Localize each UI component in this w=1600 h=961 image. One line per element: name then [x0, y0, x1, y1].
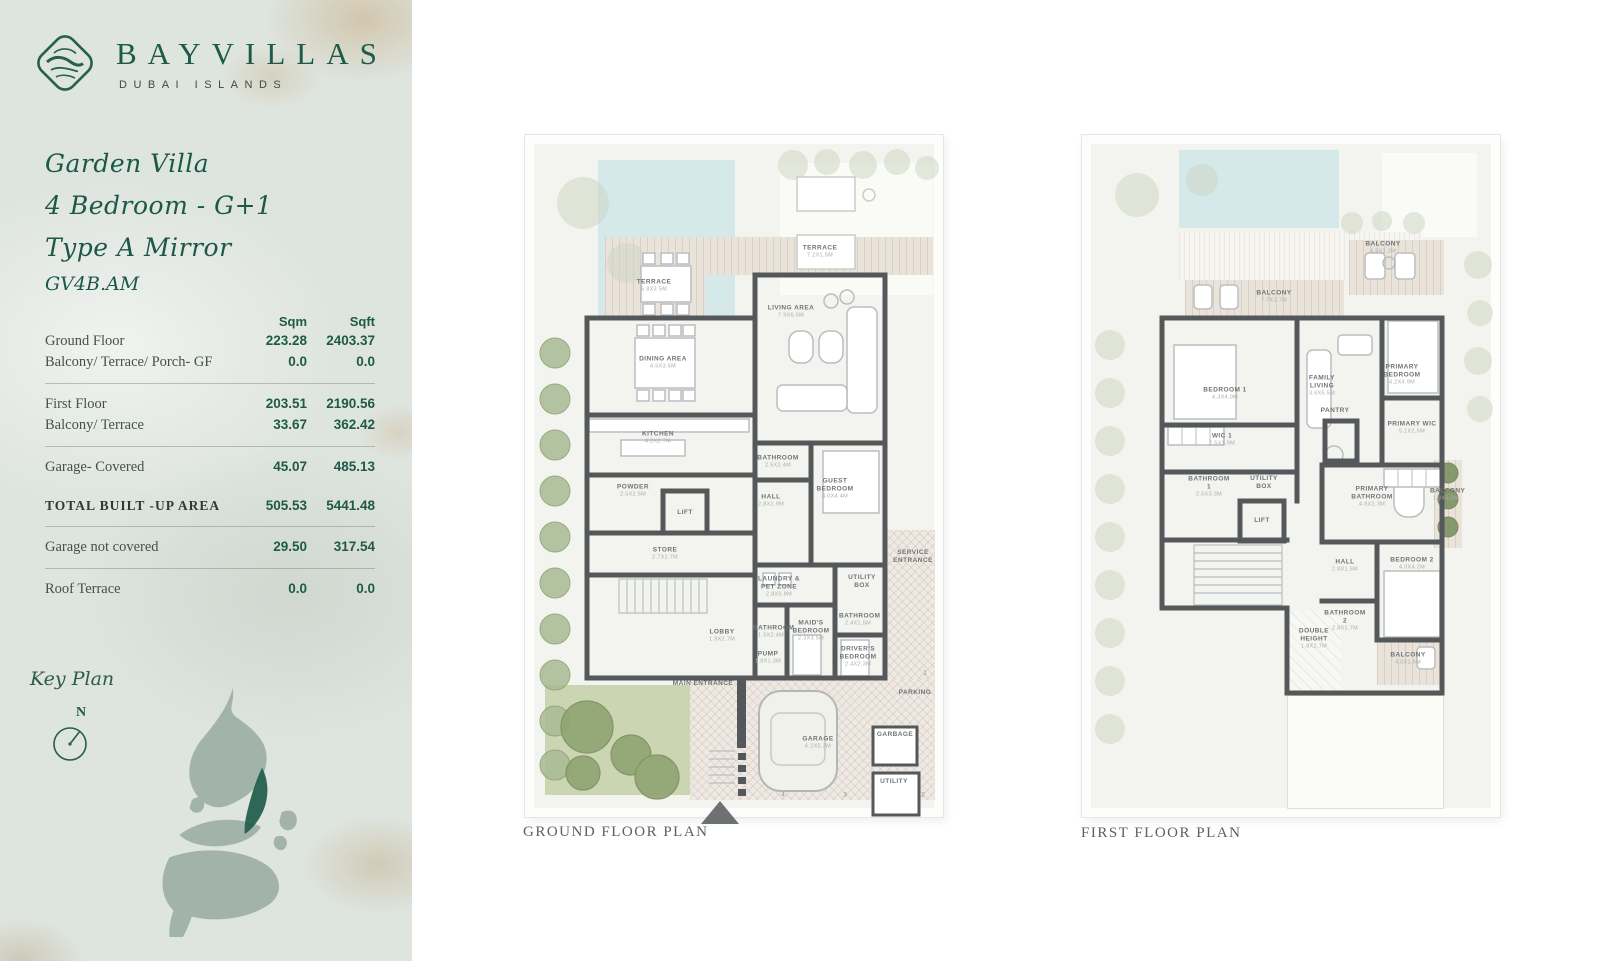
- ground-floor-panel: TERRACE7.2X1.5M TERRACE5.8X3.5M LIVING A…: [525, 135, 943, 817]
- col-header-sqft: Sqft: [307, 314, 375, 329]
- table-separator: [45, 526, 375, 527]
- brand-name: BAYVILLAS: [116, 36, 388, 72]
- table-separator: [45, 446, 375, 447]
- unit-title-line: Garden Villa: [45, 143, 272, 185]
- parking-number: 3: [843, 792, 847, 799]
- ground-floor-drawing: [525, 135, 943, 817]
- area-table: Sqm Sqft Ground Floor 223.28 2403.37 Bal…: [45, 310, 375, 602]
- table-row-total: TOTAL BUILT -UP AREA 505.53 5441.48: [45, 498, 375, 514]
- col-header-sqm: Sqm: [239, 314, 307, 329]
- key-plan-map: [138, 682, 323, 937]
- ground-floor-caption: GROUND FLOOR PLAN: [523, 824, 709, 841]
- table-separator: [45, 383, 375, 384]
- parking-number: 1: [923, 670, 927, 677]
- brand-tagline: DUBAI ISLANDS: [119, 79, 388, 91]
- sidebar: BAYVILLAS DUBAI ISLANDS Garden Villa 4 B…: [0, 0, 412, 961]
- north-label: N: [76, 705, 86, 720]
- content-area: TERRACE7.2X1.5M TERRACE5.8X3.5M LIVING A…: [412, 0, 1600, 961]
- unit-title-line: 4 Bedroom - G+1: [45, 185, 272, 227]
- bay-villas-logo-icon: [30, 28, 100, 98]
- dubai-islands-map-icon: [138, 682, 323, 937]
- parking-number: 2: [921, 792, 925, 799]
- table-row: Roof Terrace 0.0 0.0: [45, 581, 375, 598]
- parking-number: 4: [781, 792, 785, 799]
- key-plan-title: Key Plan: [30, 668, 114, 690]
- first-floor-panel: BALCONY4.5X1.2M BALCONY7.7X1.7M BEDROOM …: [1082, 135, 1500, 817]
- brochure-page: { "brand": { "name": "BAYVILLAS", "tagli…: [0, 0, 1600, 961]
- area-table-header: Sqm Sqft: [45, 314, 375, 329]
- table-row: Garage not covered 29.50 317.54: [45, 539, 375, 556]
- table-separator: [45, 568, 375, 569]
- table-row: Ground Floor 223.28 2403.37: [45, 333, 375, 350]
- unit-title-line: Type A Mirror: [45, 227, 272, 269]
- table-row: First Floor 203.51 2190.56: [45, 396, 375, 413]
- compass-needle-icon: [70, 731, 80, 744]
- unit-code: GV4B.AM: [45, 273, 272, 295]
- compass: N: [48, 700, 104, 776]
- table-row: Garage- Covered 45.07 485.13: [45, 459, 375, 476]
- first-floor-caption: FIRST FLOOR PLAN: [1081, 825, 1241, 842]
- table-row: Balcony/ Terrace 33.67 362.42: [45, 417, 375, 434]
- north-marker-icon: [701, 801, 739, 824]
- first-floor-drawing: [1082, 135, 1500, 817]
- table-row: Balcony/ Terrace/ Porch- GF 0.0 0.0: [45, 354, 375, 371]
- brand-logo: BAYVILLAS DUBAI ISLANDS: [30, 28, 388, 98]
- unit-title: Garden Villa 4 Bedroom - G+1 Type A Mirr…: [45, 143, 272, 295]
